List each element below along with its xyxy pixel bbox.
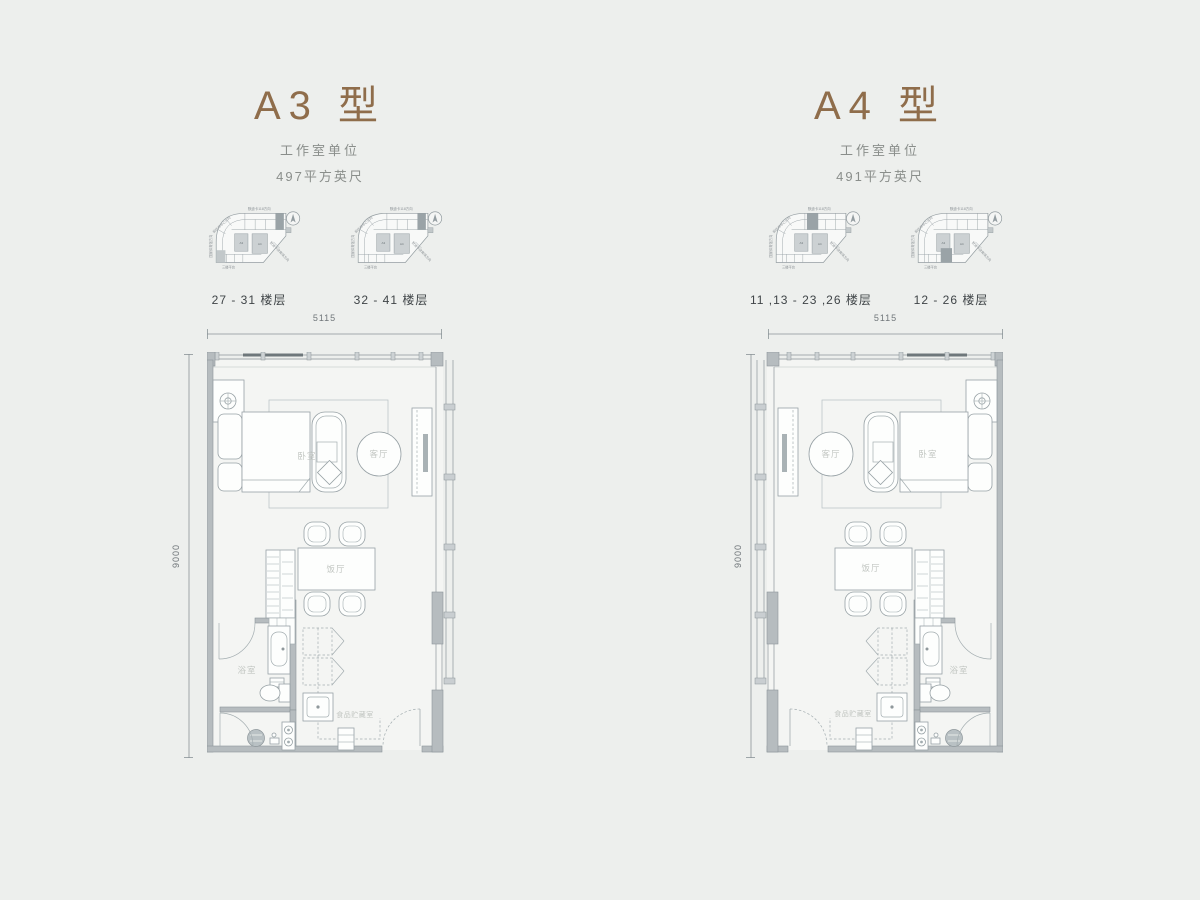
keyplan-diagram: 默迪卡118方向 前往市中心方向 国家体育馆方向 默迪卡体育场方向 三楼平台 A… (195, 201, 303, 283)
keyplan-unit-cell-a: A3 (381, 241, 385, 245)
keyplan-highlight-cell (807, 213, 818, 229)
unit-title: A3 型 (40, 84, 600, 128)
floor-plan-a4: 5115 9000 卧室 客厅 饭厅 浴室 食品贮藏室 (753, 352, 1003, 762)
keyplan-shaded-cell (216, 250, 225, 262)
keyplan-direction-left: 国家体育馆方向 (208, 235, 213, 258)
keyplan-unit-cell-b: A4 (258, 242, 262, 246)
width-dimension: 5115 (768, 325, 1003, 339)
keyplan-caption: 32 - 41 楼层 (332, 291, 450, 308)
floor-plan-drawing (753, 352, 1003, 762)
keyplan-floors-27-31: 默迪卡118方向 前往市中心方向 国家体育馆方向 默迪卡体育场方向 三楼平台 A… (190, 201, 308, 308)
height-dimension: 9000 (181, 354, 193, 758)
page-root: { "page": { "background": "#edefed" }, "… (0, 0, 1200, 900)
keyplan-direction-top: 默迪卡118方向 (248, 206, 271, 211)
floor-plan-drawing (207, 352, 457, 762)
unit-area: 497平方英尺 (40, 166, 600, 185)
width-dimension: 5115 (207, 325, 442, 339)
keyplan-row: 默迪卡118方向 前往市中心方向 国家体育馆方向 默迪卡体育场方向 三楼平台 A… (600, 201, 1160, 308)
room-label-living: 客厅 (369, 448, 388, 460)
keyplan-unit-cell-b: A4 (818, 242, 822, 246)
keyplan-unit-cell-a: A3 (799, 241, 803, 245)
keyplan-caption: 12 - 26 楼层 (892, 291, 1010, 308)
keyplan-caption: 27 - 31 楼层 (190, 291, 308, 308)
keyplan-floors-11-26: 默迪卡118方向 前往市中心方向 国家体育馆方向 默迪卡体育场方向 三楼平台 A… (750, 201, 868, 308)
floor-plan-a3: 5115 9000 卧室 客厅 饭厅 浴室 食品贮藏室 (207, 352, 457, 762)
unit-area: 491平方英尺 (600, 166, 1160, 185)
room-label-bath: 浴室 (949, 664, 968, 676)
height-dimension-label: 9000 (171, 544, 181, 568)
room-label-bath: 浴室 (237, 664, 256, 676)
room-label-living: 客厅 (821, 448, 840, 460)
room-label-pantry: 食品贮藏室 (834, 709, 872, 719)
unit-title: A4 型 (600, 84, 1160, 128)
unit-panel-a3: A3 型 工作室单位 497平方英尺 默迪卡118方向 前往市中心方向 国家体育… (40, 84, 600, 308)
keyplan-floors-12-26: 默迪卡118方向 前往市中心方向 国家体育馆方向 默迪卡体育场方向 三楼平台 A… (892, 201, 1010, 308)
unit-panel-a4: A4 型 工作室单位 491平方英尺 默迪卡118方向 前往市中心方向 国家体育… (600, 84, 1160, 308)
keyplan-unit-cell-a: A3 (239, 241, 243, 245)
keyplan-unit-cell-a: A3 (941, 241, 945, 245)
unit-subtitle: 工作室单位 (600, 140, 1160, 159)
keyplan-direction-top: 默迪卡118方向 (950, 206, 973, 211)
keyplan-label-bottom: 三楼平台 (222, 265, 236, 270)
keyplan-label-bottom: 三楼平台 (782, 265, 796, 270)
room-label-pantry: 食品贮藏室 (336, 710, 374, 720)
room-label-bedroom: 卧室 (918, 448, 937, 460)
keyplan-direction-left: 国家体育馆方向 (350, 235, 355, 258)
keyplan-direction-top: 默迪卡118方向 (390, 206, 413, 211)
keyplan-direction-left: 国家体育馆方向 (768, 235, 773, 258)
room-label-dining: 饭厅 (861, 562, 880, 574)
keyplan-diagram: 默迪卡118方向 前往市中心方向 国家体育馆方向 默迪卡体育场方向 三楼平台 A… (897, 201, 1005, 283)
keyplan-caption: 11 ,13 - 23 ,26 楼层 (750, 291, 868, 308)
keyplan-highlight-cell (276, 213, 284, 229)
width-dimension-label: 5115 (207, 313, 442, 323)
height-dimension-label: 9000 (733, 544, 743, 568)
keyplan-direction-top: 默迪卡118方向 (808, 206, 831, 211)
keyplan-highlight-cell (941, 248, 952, 262)
keyplan-row: 默迪卡118方向 前往市中心方向 国家体育馆方向 默迪卡体育场方向 三楼平台 A… (40, 201, 600, 308)
width-dimension-label: 5115 (768, 313, 1003, 323)
room-label-dining: 饭厅 (326, 563, 345, 575)
unit-subtitle: 工作室单位 (40, 140, 600, 159)
keyplan-unit-cell-b: A4 (400, 242, 404, 246)
room-label-bedroom: 卧室 (297, 450, 316, 462)
keyplan-unit-cell-b: A4 (960, 242, 964, 246)
keyplan-highlight-cell (418, 213, 426, 229)
keyplan-floors-32-41: 默迪卡118方向 前往市中心方向 国家体育馆方向 默迪卡体育场方向 三楼平台 A… (332, 201, 450, 308)
keyplan-diagram: 默迪卡118方向 前往市中心方向 国家体育馆方向 默迪卡体育场方向 三楼平台 A… (337, 201, 445, 283)
keyplan-diagram: 默迪卡118方向 前往市中心方向 国家体育馆方向 默迪卡体育场方向 三楼平台 A… (755, 201, 863, 283)
keyplan-label-bottom: 三楼平台 (364, 265, 378, 270)
keyplan-direction-left: 国家体育馆方向 (910, 235, 915, 258)
keyplan-label-bottom: 三楼平台 (924, 265, 938, 270)
